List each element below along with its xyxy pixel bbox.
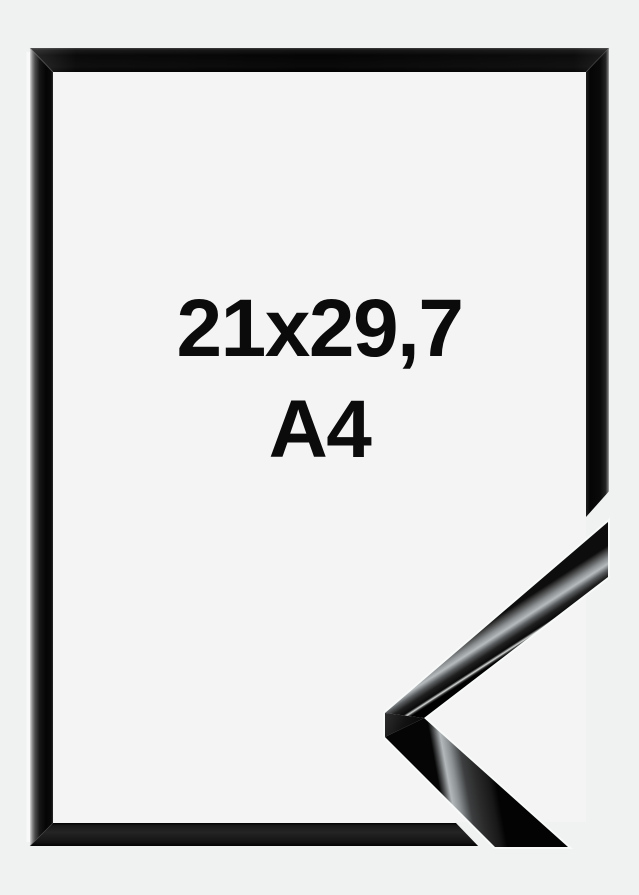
product-photo: 21x29,7 A4 (0, 0, 639, 895)
size-label-format: A4 (0, 379, 639, 480)
size-label: 21x29,7 A4 (0, 278, 639, 480)
frame-top-bar-sheen (30, 48, 609, 72)
size-label-dimensions: 21x29,7 (0, 278, 639, 379)
